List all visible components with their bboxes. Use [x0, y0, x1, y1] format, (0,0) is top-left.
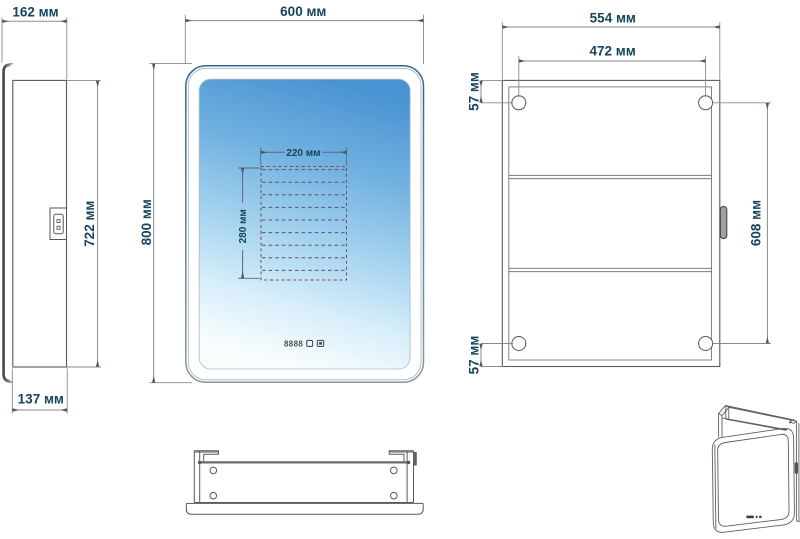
svg-text:800 мм: 800 мм: [139, 199, 154, 245]
svg-text:137 мм: 137 мм: [18, 392, 64, 407]
svg-text:162 мм: 162 мм: [12, 4, 58, 19]
svg-text:554 мм: 554 мм: [590, 11, 636, 26]
svg-text:280 мм: 280 мм: [238, 209, 249, 243]
svg-text:608 мм: 608 мм: [749, 200, 764, 246]
svg-text:722 мм: 722 мм: [82, 201, 97, 247]
svg-text:57 мм: 57 мм: [466, 336, 481, 375]
svg-text:472 мм: 472 мм: [589, 43, 635, 58]
svg-text:220 мм: 220 мм: [286, 148, 320, 159]
svg-text:600 мм: 600 мм: [280, 4, 326, 19]
svg-text:8888: 8888: [284, 339, 303, 348]
svg-text:57 мм: 57 мм: [466, 72, 481, 111]
